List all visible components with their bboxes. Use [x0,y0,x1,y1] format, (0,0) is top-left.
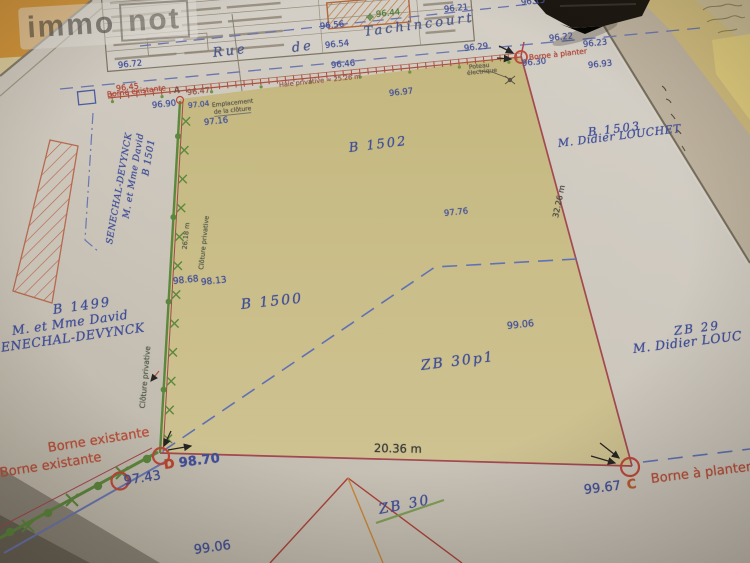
point-letter-d: D [163,457,176,473]
point-letter-a: A [173,85,180,96]
photo-of-cadastral-plan: Rue de Tachincourt 96.72 96.56 96.54 96.… [0,0,750,563]
watermark-text-boxed: not [119,0,190,42]
watermark-text: immo [26,6,116,45]
point-letter-c: C [626,477,637,493]
measurement-bottom: 20.36 m [374,441,422,456]
street-name-part: de [291,38,315,56]
plan-linework [0,0,750,563]
